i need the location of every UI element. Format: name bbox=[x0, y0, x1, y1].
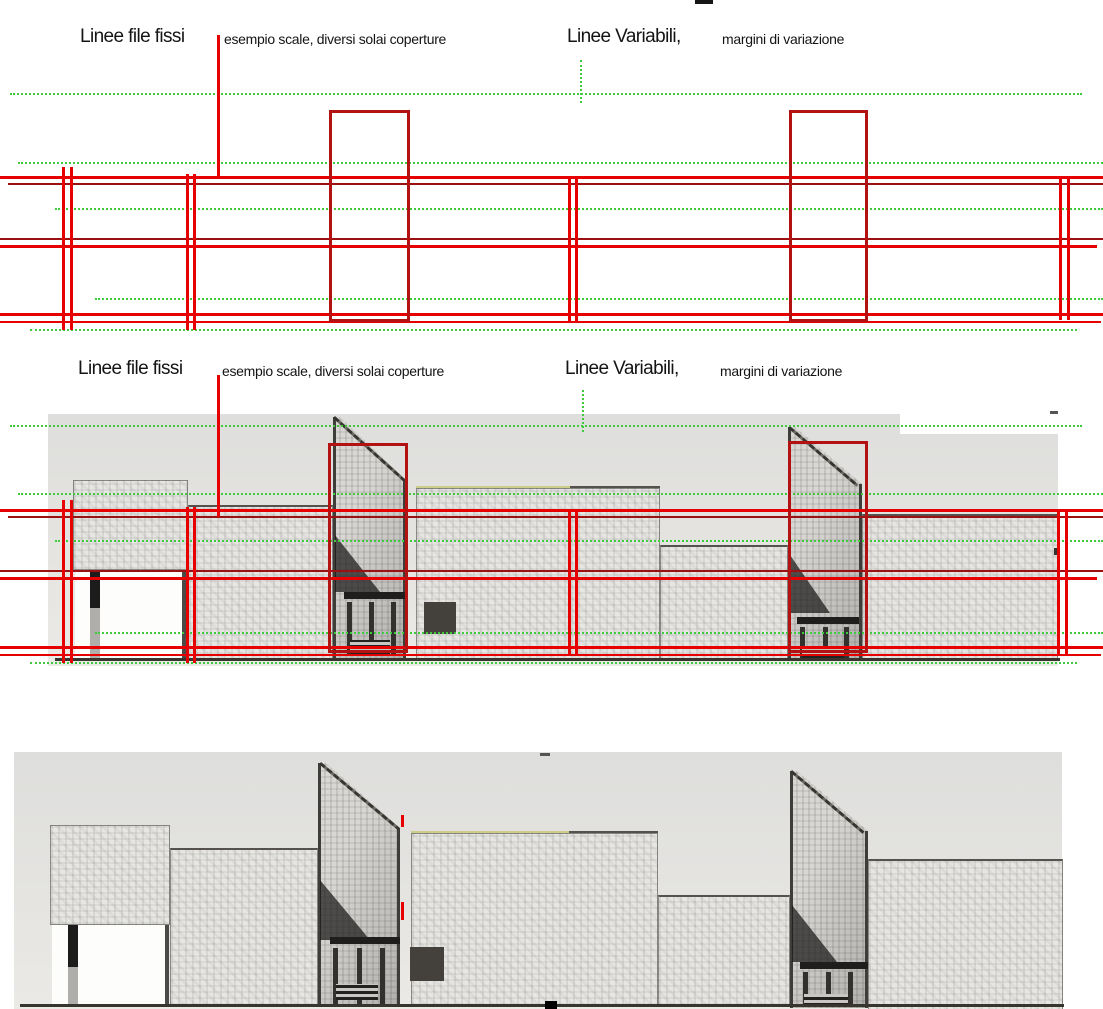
fixed-line-h-top bbox=[0, 313, 1103, 316]
facade-door-patch-bottom bbox=[410, 947, 444, 981]
fixed-line-h-middle bbox=[8, 516, 1103, 518]
top-edge-mark bbox=[695, 0, 713, 4]
sketch-mark-bottom bbox=[401, 815, 404, 827]
variable-lines-title-middle: Linee Variabili, bbox=[565, 358, 679, 380]
building-block-middle bbox=[660, 545, 788, 661]
sail-tower-1-bottom-stair-steps bbox=[336, 984, 378, 1000]
fixed-line-v-middle bbox=[186, 507, 189, 663]
fixed-line-h-middle bbox=[0, 646, 1103, 649]
variable-line-h-middle bbox=[18, 493, 1103, 495]
sail-tower-2-bottom-stair-landing bbox=[800, 962, 868, 969]
variable-line-h-top bbox=[55, 208, 1103, 210]
building-block-middle bbox=[188, 505, 333, 661]
fixed-line-h-top bbox=[0, 321, 1101, 323]
building-block-bottom bbox=[868, 859, 1063, 1009]
sketch-mark-bottom bbox=[540, 753, 550, 756]
fixed-line-v-top bbox=[70, 167, 73, 330]
building-block-middle bbox=[416, 488, 660, 661]
roof-edge-dark-bottom bbox=[569, 831, 658, 833]
fixed-line-h-middle bbox=[0, 577, 1097, 580]
fixed-line-v-top bbox=[62, 167, 65, 330]
fixed-line-v-top bbox=[193, 174, 196, 330]
sail-tower-1-bottom-stair-post bbox=[380, 948, 385, 1004]
pilotis-column-dark-bottom bbox=[68, 925, 78, 967]
building-block-bottom bbox=[411, 833, 658, 1006]
pilotis-wall-bottom bbox=[165, 925, 169, 1005]
variable-line-h-middle bbox=[95, 632, 1103, 634]
sail-tower-2-bottom-stair-post bbox=[848, 972, 853, 1005]
variable-line-v-top bbox=[580, 60, 582, 103]
variable-line-h-middle bbox=[55, 540, 1103, 542]
sketch-mark-middle bbox=[1050, 411, 1058, 414]
fixed-lines-title-middle: Linee file fissi bbox=[78, 358, 182, 380]
building-block-middle bbox=[862, 514, 1058, 661]
variable-lines-subtitle-top: margini di variazione bbox=[722, 31, 844, 48]
fixed-lines-title-top: Linee file fissi bbox=[80, 26, 184, 48]
sketch-mark-bottom bbox=[545, 1001, 557, 1009]
variation-rect-middle bbox=[788, 441, 868, 653]
photo-white-patch bbox=[900, 414, 1058, 434]
fixed-line-h-top bbox=[0, 238, 1103, 240]
fixed-line-v-middle bbox=[193, 507, 196, 663]
fixed-line-v-middle bbox=[1065, 509, 1068, 656]
fixed-line-v-middle bbox=[1057, 509, 1060, 656]
fixed-line-v-top bbox=[568, 176, 571, 323]
variable-line-v-middle bbox=[582, 390, 584, 432]
ground-line-middle bbox=[55, 658, 1060, 661]
roof-highlight-yellow-middle bbox=[416, 486, 570, 488]
building-block-bottom bbox=[170, 848, 318, 1006]
fixed-line-h-top bbox=[0, 176, 1103, 179]
variable-line-h-top bbox=[18, 162, 1103, 164]
variation-rect-top bbox=[789, 110, 868, 322]
building-block-bottom bbox=[50, 825, 170, 925]
fixed-line-v-middle bbox=[62, 500, 65, 663]
diagram-canvas: Linee file fissi esempio scale, diversi … bbox=[0, 0, 1103, 1009]
fixed-line-h-middle bbox=[0, 654, 1101, 656]
variation-rect-middle bbox=[328, 443, 408, 653]
variable-line-h-top bbox=[10, 93, 1082, 95]
sail-tower-2-bottom-left-edge bbox=[790, 771, 793, 1008]
fixed-line-v-middle bbox=[575, 509, 578, 656]
roof-highlight-yellow-bottom bbox=[411, 831, 569, 833]
fixed-line-v-middle bbox=[217, 375, 220, 517]
variable-lines-title-top: Linee Variabili, bbox=[567, 26, 681, 48]
roof-edge-dark-middle bbox=[570, 486, 660, 488]
variable-line-h-top bbox=[95, 298, 1103, 300]
fixed-line-v-top bbox=[1059, 176, 1062, 320]
variation-rect-top bbox=[329, 110, 410, 322]
fixed-line-v-top bbox=[1067, 176, 1070, 320]
fixed-line-h-middle bbox=[0, 570, 1103, 572]
variable-lines-subtitle-middle: margini di variazione bbox=[720, 363, 842, 380]
fixed-line-h-top bbox=[8, 183, 1103, 185]
fixed-lines-subtitle-middle: esempio scale, diversi solai coperture bbox=[222, 363, 444, 380]
facade-door-patch-middle bbox=[424, 602, 456, 634]
fixed-line-v-middle bbox=[70, 500, 73, 663]
fixed-line-v-top bbox=[186, 174, 189, 330]
fixed-line-v-top bbox=[217, 35, 220, 178]
fixed-lines-subtitle-top: esempio scale, diversi solai coperture bbox=[224, 31, 446, 48]
sketch-mark-bottom bbox=[401, 902, 404, 920]
variable-line-h-middle bbox=[10, 425, 1082, 427]
fixed-line-h-top bbox=[0, 245, 1097, 248]
pilotis-column-base-bottom bbox=[68, 967, 78, 1005]
ground-line-bottom bbox=[20, 1004, 1064, 1007]
sail-tower-2-bottom-right-edge bbox=[865, 831, 868, 1008]
sail-tower-1-bottom-right-edge bbox=[397, 828, 400, 1006]
sail-tower-1-bottom-stair-landing bbox=[330, 937, 400, 944]
fixed-line-h-middle bbox=[0, 509, 1103, 512]
building-block-bottom bbox=[658, 895, 790, 1006]
fixed-line-v-top bbox=[575, 176, 578, 323]
fixed-line-v-middle bbox=[568, 509, 571, 656]
